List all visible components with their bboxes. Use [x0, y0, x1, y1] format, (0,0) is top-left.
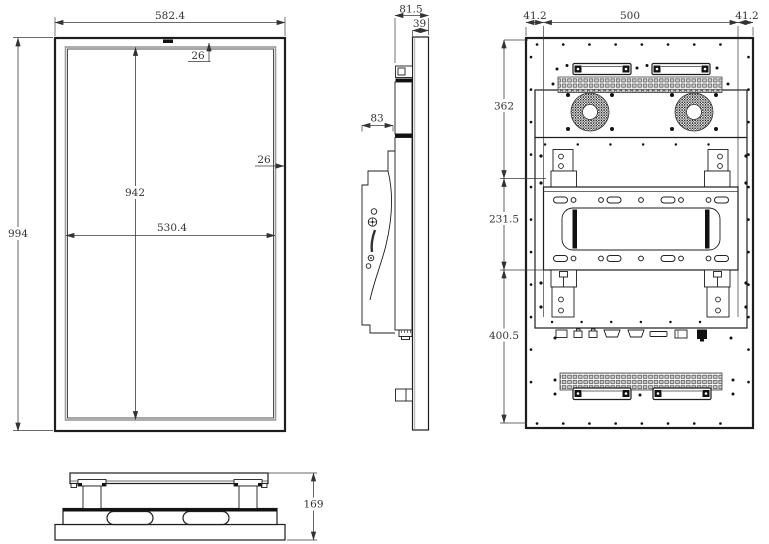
bottom-pedestal-right	[234, 480, 262, 509]
vent-grille-top	[558, 77, 722, 93]
side-bottom-connector	[399, 330, 412, 340]
side-wall-bracket	[362, 151, 395, 333]
dim-label-back-upper-section: 362	[494, 101, 514, 113]
dim-label-side-overall-depth: 81.5	[399, 4, 422, 16]
plate-cutout	[562, 208, 720, 250]
dim-label-front-overall-width: 582.4	[155, 10, 185, 22]
drawing-page: 582.4 994 942 530.4 26 26	[0, 0, 769, 544]
bottom-cabinet-layer	[63, 509, 277, 525]
bracket-screw	[366, 264, 371, 269]
dim-label-front-bezel-side: 26	[257, 154, 271, 166]
bottom-base-plate	[55, 525, 285, 541]
bracket-screw	[371, 209, 377, 215]
handle-bottom-right	[653, 388, 711, 400]
dim-label-front-screen-width: 530.4	[157, 222, 187, 234]
technical-drawing-canvas: 582.4 994 942 530.4 26 26	[0, 0, 769, 544]
side-top-clamp	[396, 66, 413, 82]
dim-label-side-bracket-depth: 83	[370, 113, 383, 125]
bottom-handle-cutout	[107, 512, 153, 525]
handle-top-right	[652, 64, 710, 75]
wall-mount-plate	[544, 187, 739, 270]
bottom-view: 169	[55, 473, 326, 540]
dim-label-front-overall-height: 994	[8, 228, 28, 240]
side-view: 81.5 39 83	[362, 4, 429, 431]
front-view: 582.4 994 942 530.4 26 26	[6, 10, 285, 431]
bottom-pedestal-left	[78, 480, 106, 509]
handle-top-left	[573, 64, 631, 75]
front-sensor-mark	[163, 40, 173, 44]
mount-bracket-upper-right	[705, 150, 731, 188]
side-enclosure	[395, 82, 412, 330]
dim-label-back-lower-section: 400.5	[489, 330, 519, 342]
dim-label-back-mount-width: 500	[620, 10, 640, 22]
front-cabinet-outline	[55, 38, 285, 431]
dim-label-back-margin-right: 41.2	[735, 10, 758, 22]
dim-label-front-bezel-top: 26	[191, 50, 205, 62]
dim-label-side-panel-thickness: 39	[413, 18, 426, 30]
mount-bracket-upper-left	[551, 150, 577, 188]
dim-label-bottom-overall-height: 169	[303, 499, 323, 511]
bottom-handle-cutout	[183, 512, 229, 525]
dim-label-back-margin-left: 41.2	[523, 10, 546, 22]
mount-bracket-lower-left	[551, 270, 577, 317]
mount-bracket-lower-right	[705, 270, 731, 317]
bracket-slot	[372, 230, 375, 252]
handle-bottom-left	[573, 388, 631, 400]
side-foot	[396, 389, 413, 401]
dsub-connector	[628, 330, 644, 337]
dim-label-front-screen-height: 942	[125, 187, 145, 199]
dsub-connector	[604, 330, 620, 337]
back-view: 41.2 500 41.2 362 231.5 400.5	[487, 10, 759, 428]
dim-label-back-middle-section: 231.5	[489, 214, 519, 226]
